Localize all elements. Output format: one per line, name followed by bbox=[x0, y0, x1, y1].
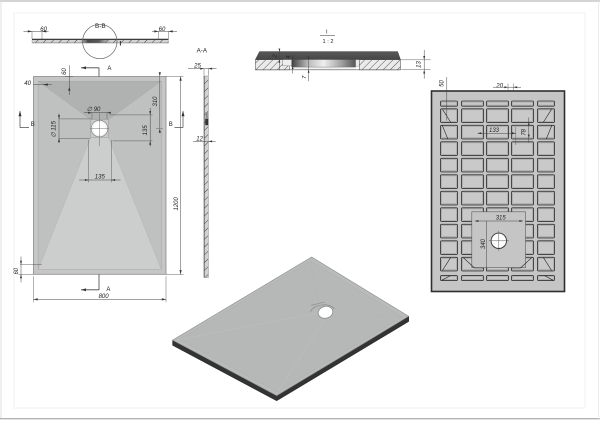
svg-text:13: 13 bbox=[417, 61, 423, 68]
svg-text:B: B bbox=[31, 122, 35, 128]
svg-text:B: B bbox=[169, 122, 173, 128]
svg-text:310: 310 bbox=[153, 96, 159, 107]
svg-text:60: 60 bbox=[40, 27, 47, 33]
svg-text:20: 20 bbox=[495, 84, 503, 90]
svg-text:60: 60 bbox=[14, 267, 20, 274]
svg-text:A: A bbox=[106, 287, 110, 293]
svg-text:40: 40 bbox=[24, 81, 31, 87]
svg-text:12: 12 bbox=[196, 137, 203, 143]
svg-text:B-B: B-B bbox=[95, 23, 106, 30]
svg-text:∅ 115: ∅ 115 bbox=[50, 120, 57, 137]
svg-text:340: 340 bbox=[481, 238, 487, 249]
svg-text:78: 78 bbox=[521, 128, 527, 135]
svg-text:4: 4 bbox=[286, 55, 292, 58]
svg-text:135: 135 bbox=[143, 125, 149, 136]
svg-text:A-A: A-A bbox=[197, 48, 208, 55]
svg-text:1 : 2: 1 : 2 bbox=[323, 39, 334, 45]
svg-text:1200: 1200 bbox=[174, 196, 180, 210]
svg-text:133: 133 bbox=[489, 128, 500, 134]
svg-text:315: 315 bbox=[496, 216, 507, 222]
svg-text:60: 60 bbox=[159, 27, 166, 33]
svg-text:135: 135 bbox=[95, 175, 106, 181]
svg-text:50: 50 bbox=[440, 80, 446, 87]
svg-text:60: 60 bbox=[62, 68, 68, 75]
svg-text:800: 800 bbox=[99, 294, 110, 300]
svg-text:A: A bbox=[107, 66, 111, 72]
